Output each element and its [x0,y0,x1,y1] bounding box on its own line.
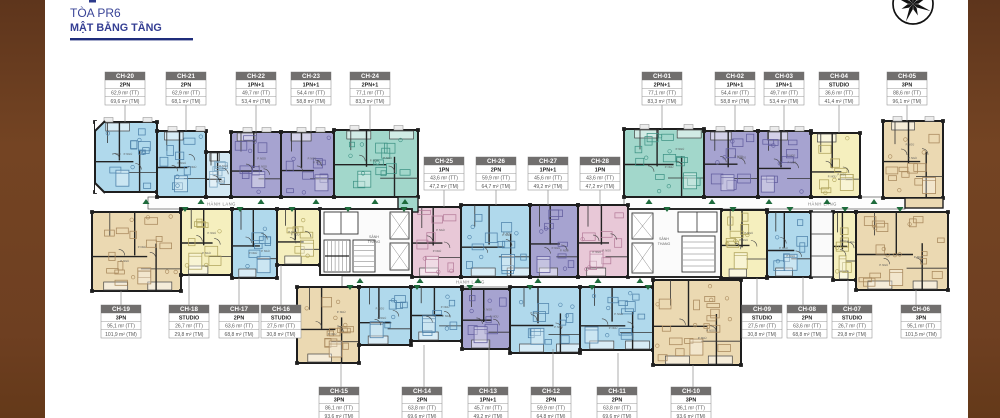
svg-text:101,9 m² (TM): 101,9 m² (TM) [105,332,137,338]
svg-text:93,6 m² (TM): 93,6 m² (TM) [677,414,706,418]
svg-text:STUDIO: STUDIO [752,315,772,321]
svg-text:62,9 m² (TT): 62,9 m² (TT) [172,91,200,97]
svg-text:26,7 m² (TT): 26,7 m² (TT) [838,324,866,330]
svg-text:59,9 m² (TT): 59,9 m² (TT) [537,406,565,412]
svg-text:63,6 m² (TT): 63,6 m² (TT) [793,324,821,330]
svg-text:1PN+1: 1PN+1 [480,397,497,403]
svg-text:49,2 m² (TM): 49,2 m² (TM) [474,414,503,418]
svg-text:88,6 m² (TT): 88,6 m² (TT) [893,91,921,97]
svg-text:69,6 m² (TM): 69,6 m² (TM) [603,414,632,418]
svg-text:95,1 m² (TT): 95,1 m² (TT) [907,324,935,330]
svg-text:68,1 m² (TM): 68,1 m² (TM) [172,99,201,105]
svg-text:54,4 m² (TT): 54,4 m² (TT) [297,91,325,97]
svg-text:2PN+1: 2PN+1 [654,82,671,88]
svg-text:3PN: 3PN [916,315,927,321]
svg-text:1PN+1: 1PN+1 [248,82,265,88]
svg-text:29,8 m² (TM): 29,8 m² (TM) [175,332,204,338]
svg-text:30,8 m² (TM): 30,8 m² (TM) [267,332,296,338]
svg-text:3PN: 3PN [334,397,345,403]
svg-text:26,7 m² (TT): 26,7 m² (TT) [175,324,203,330]
svg-text:CH-25: CH-25 [435,158,453,165]
svg-text:HÀNH LANG: HÀNH LANG [207,202,236,207]
svg-text:MẬT BẰNG TẦNG: MẬT BẰNG TẦNG [70,21,162,34]
svg-text:CH-12: CH-12 [542,388,560,395]
svg-text:95,1 m² (TT): 95,1 m² (TT) [107,324,135,330]
svg-text:CH-03: CH-03 [775,73,793,80]
svg-text:86,1 m² (TT): 86,1 m² (TT) [325,406,353,412]
svg-text:68,8 m² (TM): 68,8 m² (TM) [793,332,822,338]
svg-text:SẢNH: SẢNH [659,236,669,241]
svg-text:64,7 m² (TM): 64,7 m² (TM) [482,184,511,190]
svg-text:CH-18: CH-18 [180,306,198,313]
svg-text:CH-01: CH-01 [653,73,671,80]
svg-text:STUDIO: STUDIO [179,315,199,321]
svg-text:101,5 m² (TM): 101,5 m² (TM) [905,332,937,338]
svg-text:83,3 m² (TM): 83,3 m² (TM) [356,99,385,105]
svg-text:2PN: 2PN [234,315,245,321]
svg-text:SẢNH: SẢNH [369,234,379,239]
svg-text:47,2 m² (TM): 47,2 m² (TM) [430,184,459,190]
svg-text:HÀNH LANG: HÀNH LANG [808,202,837,207]
svg-text:63,8 m² (TT): 63,8 m² (TT) [408,406,436,412]
svg-text:CH-11: CH-11 [608,388,626,395]
svg-text:1PN+1: 1PN+1 [727,82,744,88]
svg-text:3PN: 3PN [902,82,913,88]
svg-text:58,8 m² (TM): 58,8 m² (TM) [721,99,750,105]
svg-text:49,2 m² (TM): 49,2 m² (TM) [534,184,563,190]
svg-text:CH-21: CH-21 [177,73,195,80]
svg-text:CH-15: CH-15 [330,388,348,395]
svg-text:63,8 m² (TT): 63,8 m² (TT) [603,406,631,412]
svg-text:2PN: 2PN [612,397,623,403]
svg-text:CH-17: CH-17 [230,306,248,313]
svg-text:1PN: 1PN [595,167,606,173]
svg-text:49,7 m² (TT): 49,7 m² (TT) [770,91,798,97]
svg-text:CH-05: CH-05 [898,73,916,80]
svg-text:STUDIO: STUDIO [271,315,291,321]
svg-text:2PN: 2PN [417,397,428,403]
svg-text:1PN+1: 1PN+1 [540,167,557,173]
svg-text:STUDIO: STUDIO [829,82,849,88]
svg-text:54,4 m² (TT): 54,4 m² (TT) [721,91,749,97]
svg-text:CH-10: CH-10 [682,388,700,395]
svg-text:CH-14: CH-14 [413,388,431,395]
svg-text:86,1 m² (TT): 86,1 m² (TT) [677,406,705,412]
svg-text:TÒA PR6: TÒA PR6 [70,5,121,20]
svg-text:77,1 m² (TT): 77,1 m² (TT) [356,91,384,97]
svg-text:2PN+1: 2PN+1 [362,82,379,88]
svg-text:CH-24: CH-24 [361,73,379,80]
svg-text:STUDIO: STUDIO [842,315,862,321]
svg-text:CH-08: CH-08 [798,306,816,313]
svg-text:THANG: THANG [658,242,671,246]
svg-text:CH-02: CH-02 [726,73,744,80]
svg-text:CH-26: CH-26 [487,158,505,165]
svg-text:96,1 m² (TM): 96,1 m² (TM) [893,99,922,105]
svg-text:2PN: 2PN [120,82,131,88]
svg-text:CH-27: CH-27 [539,158,557,165]
svg-text:CH-16: CH-16 [272,306,290,313]
svg-text:CH-22: CH-22 [247,73,265,80]
svg-text:1PN: 1PN [439,167,450,173]
svg-text:59,9 m² (TT): 59,9 m² (TT) [482,176,510,182]
svg-text:29,8 m² (TM): 29,8 m² (TM) [838,332,867,338]
svg-text:1PN+1: 1PN+1 [303,82,320,88]
svg-text:93,6 m² (TM): 93,6 m² (TM) [325,414,354,418]
svg-text:83,3 m² (TM): 83,3 m² (TM) [648,99,677,105]
svg-text:77,1 m² (TT): 77,1 m² (TT) [648,91,676,97]
svg-text:CH-19: CH-19 [112,306,130,313]
svg-text:49,7 m² (TT): 49,7 m² (TT) [242,91,270,97]
svg-text:41,4 m² (TM): 41,4 m² (TM) [825,99,854,105]
svg-text:63,6 m² (TT): 63,6 m² (TT) [225,324,253,330]
svg-text:43,6 m² (TT): 43,6 m² (TT) [586,176,614,182]
svg-text:CH-23: CH-23 [302,73,320,80]
svg-text:45,6 m² (TT): 45,6 m² (TT) [534,176,562,182]
svg-text:36,6 m² (TT): 36,6 m² (TT) [825,91,853,97]
svg-text:CH-20: CH-20 [116,73,134,80]
svg-text:30,8 m² (TM): 30,8 m² (TM) [748,332,777,338]
svg-text:69,6 m² (TM): 69,6 m² (TM) [408,414,437,418]
svg-text:2PN: 2PN [491,167,502,173]
svg-text:69,6 m² (TM): 69,6 m² (TM) [111,99,140,105]
svg-text:CH-09: CH-09 [753,306,771,313]
svg-text:27,5 m² (TT): 27,5 m² (TT) [748,324,776,330]
svg-text:43,6 m² (TT): 43,6 m² (TT) [430,176,458,182]
svg-text:3PN: 3PN [686,397,697,403]
svg-text:THANG: THANG [368,240,381,244]
svg-text:64,8 m² (TM): 64,8 m² (TM) [537,414,566,418]
svg-text:47,2 m² (TM): 47,2 m² (TM) [586,184,615,190]
svg-text:CH-06: CH-06 [912,306,930,313]
svg-text:45,7 m² (TT): 45,7 m² (TT) [474,406,502,412]
svg-text:2PN: 2PN [181,82,192,88]
svg-text:58,8 m² (TM): 58,8 m² (TM) [297,99,326,105]
svg-text:53,4 m² (TM): 53,4 m² (TM) [770,99,799,105]
svg-text:53,4 m² (TM): 53,4 m² (TM) [242,99,271,105]
svg-text:2PN: 2PN [802,315,813,321]
svg-text:68,8 m² (TM): 68,8 m² (TM) [225,332,254,338]
svg-text:CH-13: CH-13 [479,388,497,395]
svg-text:2PN: 2PN [546,397,557,403]
svg-text:3PN: 3PN [116,315,127,321]
svg-text:1PN+1: 1PN+1 [776,82,793,88]
svg-text:CH-07: CH-07 [843,306,861,313]
svg-text:62,9 m² (TT): 62,9 m² (TT) [111,91,139,97]
svg-text:CH-04: CH-04 [830,73,848,80]
svg-text:27,5 m² (TT): 27,5 m² (TT) [267,324,295,330]
svg-text:CH-28: CH-28 [591,158,609,165]
